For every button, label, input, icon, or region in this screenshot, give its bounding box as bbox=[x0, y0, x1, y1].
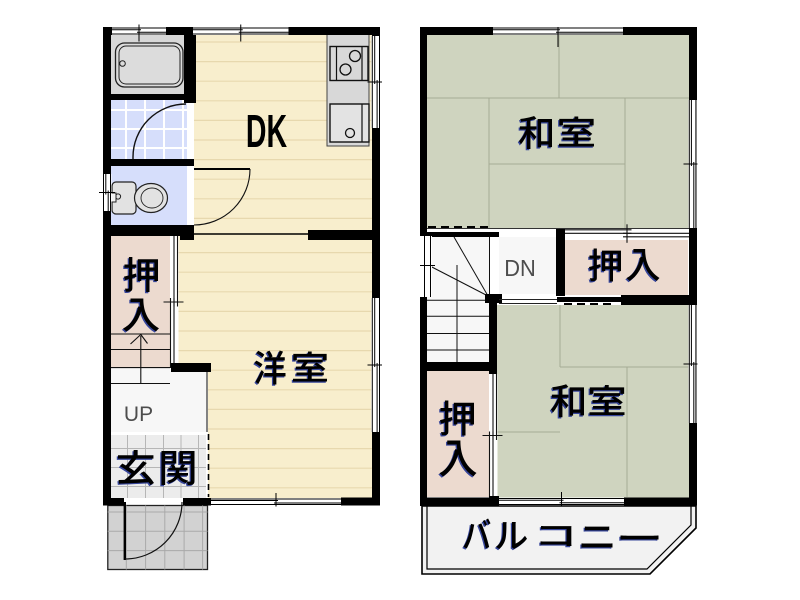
svg-text:DN: DN bbox=[504, 255, 536, 281]
svg-text:UP: UP bbox=[124, 403, 153, 426]
svg-text:DK: DK bbox=[246, 106, 287, 158]
